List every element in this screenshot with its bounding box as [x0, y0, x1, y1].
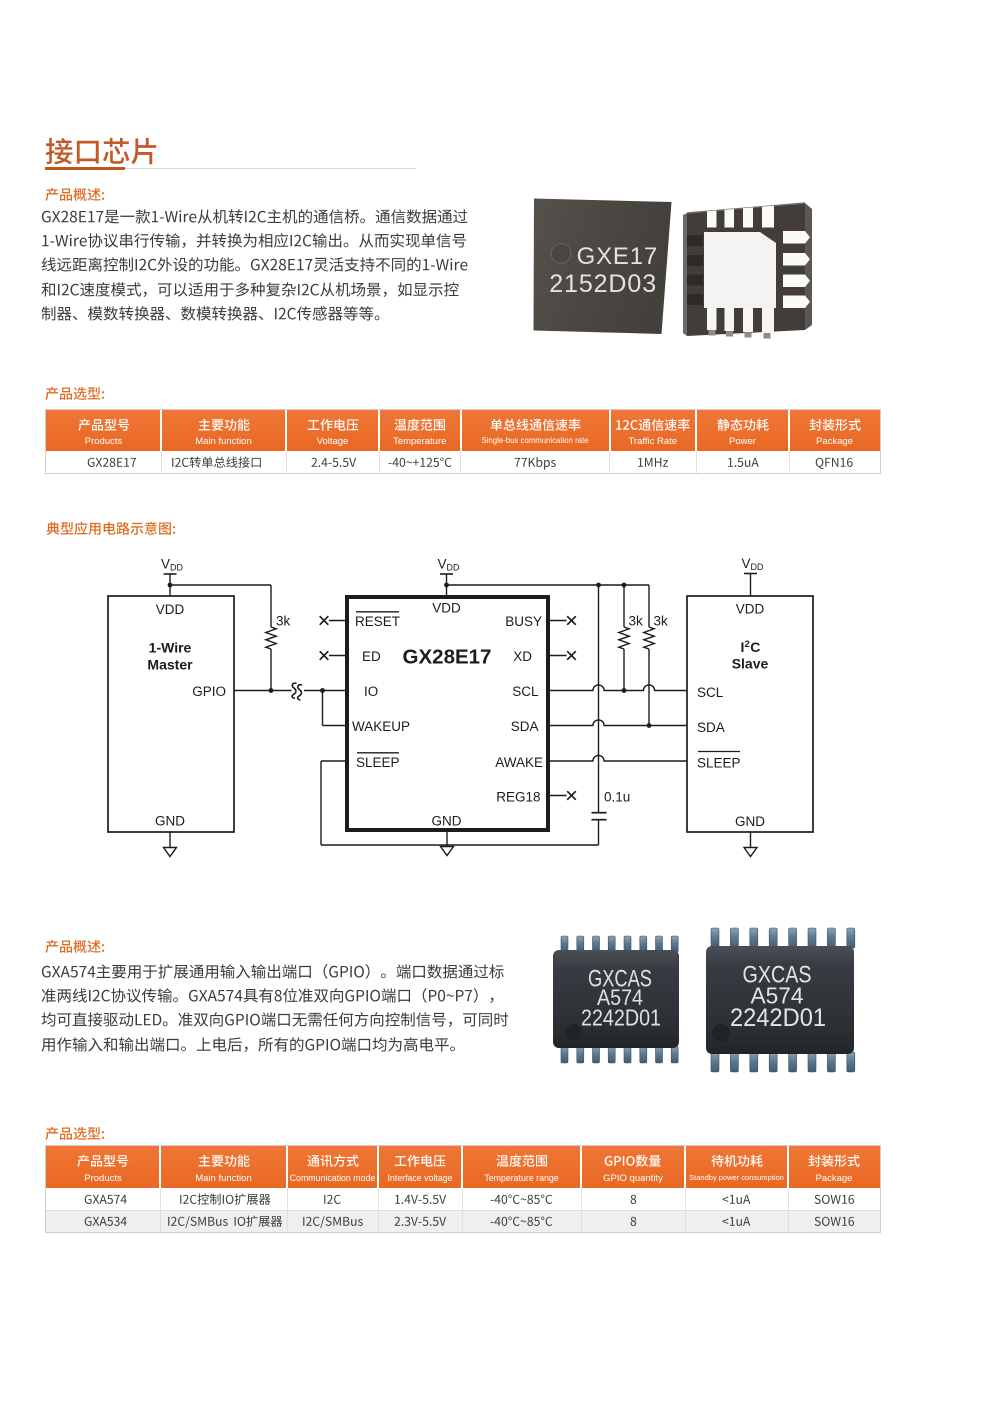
svg-text:SDA: SDA — [511, 719, 539, 734]
svg-text:DD: DD — [751, 562, 764, 572]
svg-text:VDD: VDD — [736, 602, 765, 617]
svg-text:DD: DD — [447, 563, 460, 573]
svg-text:GXE17: GXE17 — [577, 243, 658, 270]
svg-text:V: V — [741, 556, 750, 571]
svg-text:GPIO: GPIO — [192, 684, 226, 699]
svg-text:3k: 3k — [654, 614, 669, 629]
svg-text:3k: 3k — [276, 614, 291, 629]
svg-text:Master: Master — [147, 657, 193, 673]
svg-text:VDD: VDD — [156, 602, 185, 617]
svg-text:SCL: SCL — [697, 685, 724, 700]
svg-text:SLEEP: SLEEP — [697, 756, 741, 771]
svg-text:GX28E17: GX28E17 — [403, 646, 492, 669]
svg-text:ED: ED — [362, 649, 381, 664]
svg-text:C: C — [750, 639, 760, 655]
svg-text:BUSY: BUSY — [505, 614, 542, 629]
svg-text:2: 2 — [745, 639, 750, 650]
svg-text:GND: GND — [735, 814, 765, 829]
svg-text:REG18: REG18 — [496, 790, 540, 805]
svg-text:V: V — [437, 557, 446, 572]
svg-text:1-Wire: 1-Wire — [149, 640, 192, 656]
svg-text:Slave: Slave — [732, 656, 769, 672]
svg-text:SLEEP: SLEEP — [356, 755, 400, 770]
svg-text:SDA: SDA — [697, 720, 725, 735]
svg-text:AWAKE: AWAKE — [495, 755, 543, 770]
svg-text:2152D03: 2152D03 — [549, 270, 657, 298]
svg-text:XD: XD — [513, 649, 532, 664]
svg-text:RESET: RESET — [355, 614, 400, 629]
svg-text:V: V — [161, 557, 170, 572]
svg-text:2242D01: 2242D01 — [581, 1005, 661, 1031]
svg-text:DD: DD — [170, 563, 183, 573]
svg-text:2242D01: 2242D01 — [730, 1004, 826, 1032]
svg-text:GND: GND — [432, 814, 462, 829]
svg-text:WAKEUP: WAKEUP — [352, 719, 410, 734]
svg-text:3k: 3k — [629, 614, 644, 629]
svg-text:0.1u: 0.1u — [604, 790, 630, 805]
svg-text:GND: GND — [155, 814, 185, 829]
svg-text:SCL: SCL — [512, 684, 539, 699]
svg-text:VDD: VDD — [432, 601, 461, 616]
svg-text:IO: IO — [364, 684, 378, 699]
